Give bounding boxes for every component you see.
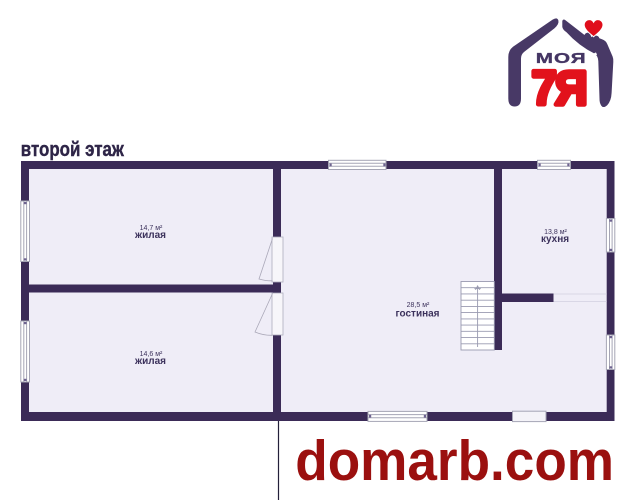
svg-text:жилая: жилая (134, 356, 166, 367)
svg-text:7Я: 7Я (531, 62, 585, 115)
svg-text:жилая: жилая (134, 230, 166, 241)
svg-text:кухня: кухня (541, 234, 569, 245)
svg-text:второй этаж: второй этаж (21, 137, 125, 160)
svg-text:гостиная: гостиная (395, 308, 439, 319)
svg-text:domarb.com: domarb.com (295, 428, 614, 492)
